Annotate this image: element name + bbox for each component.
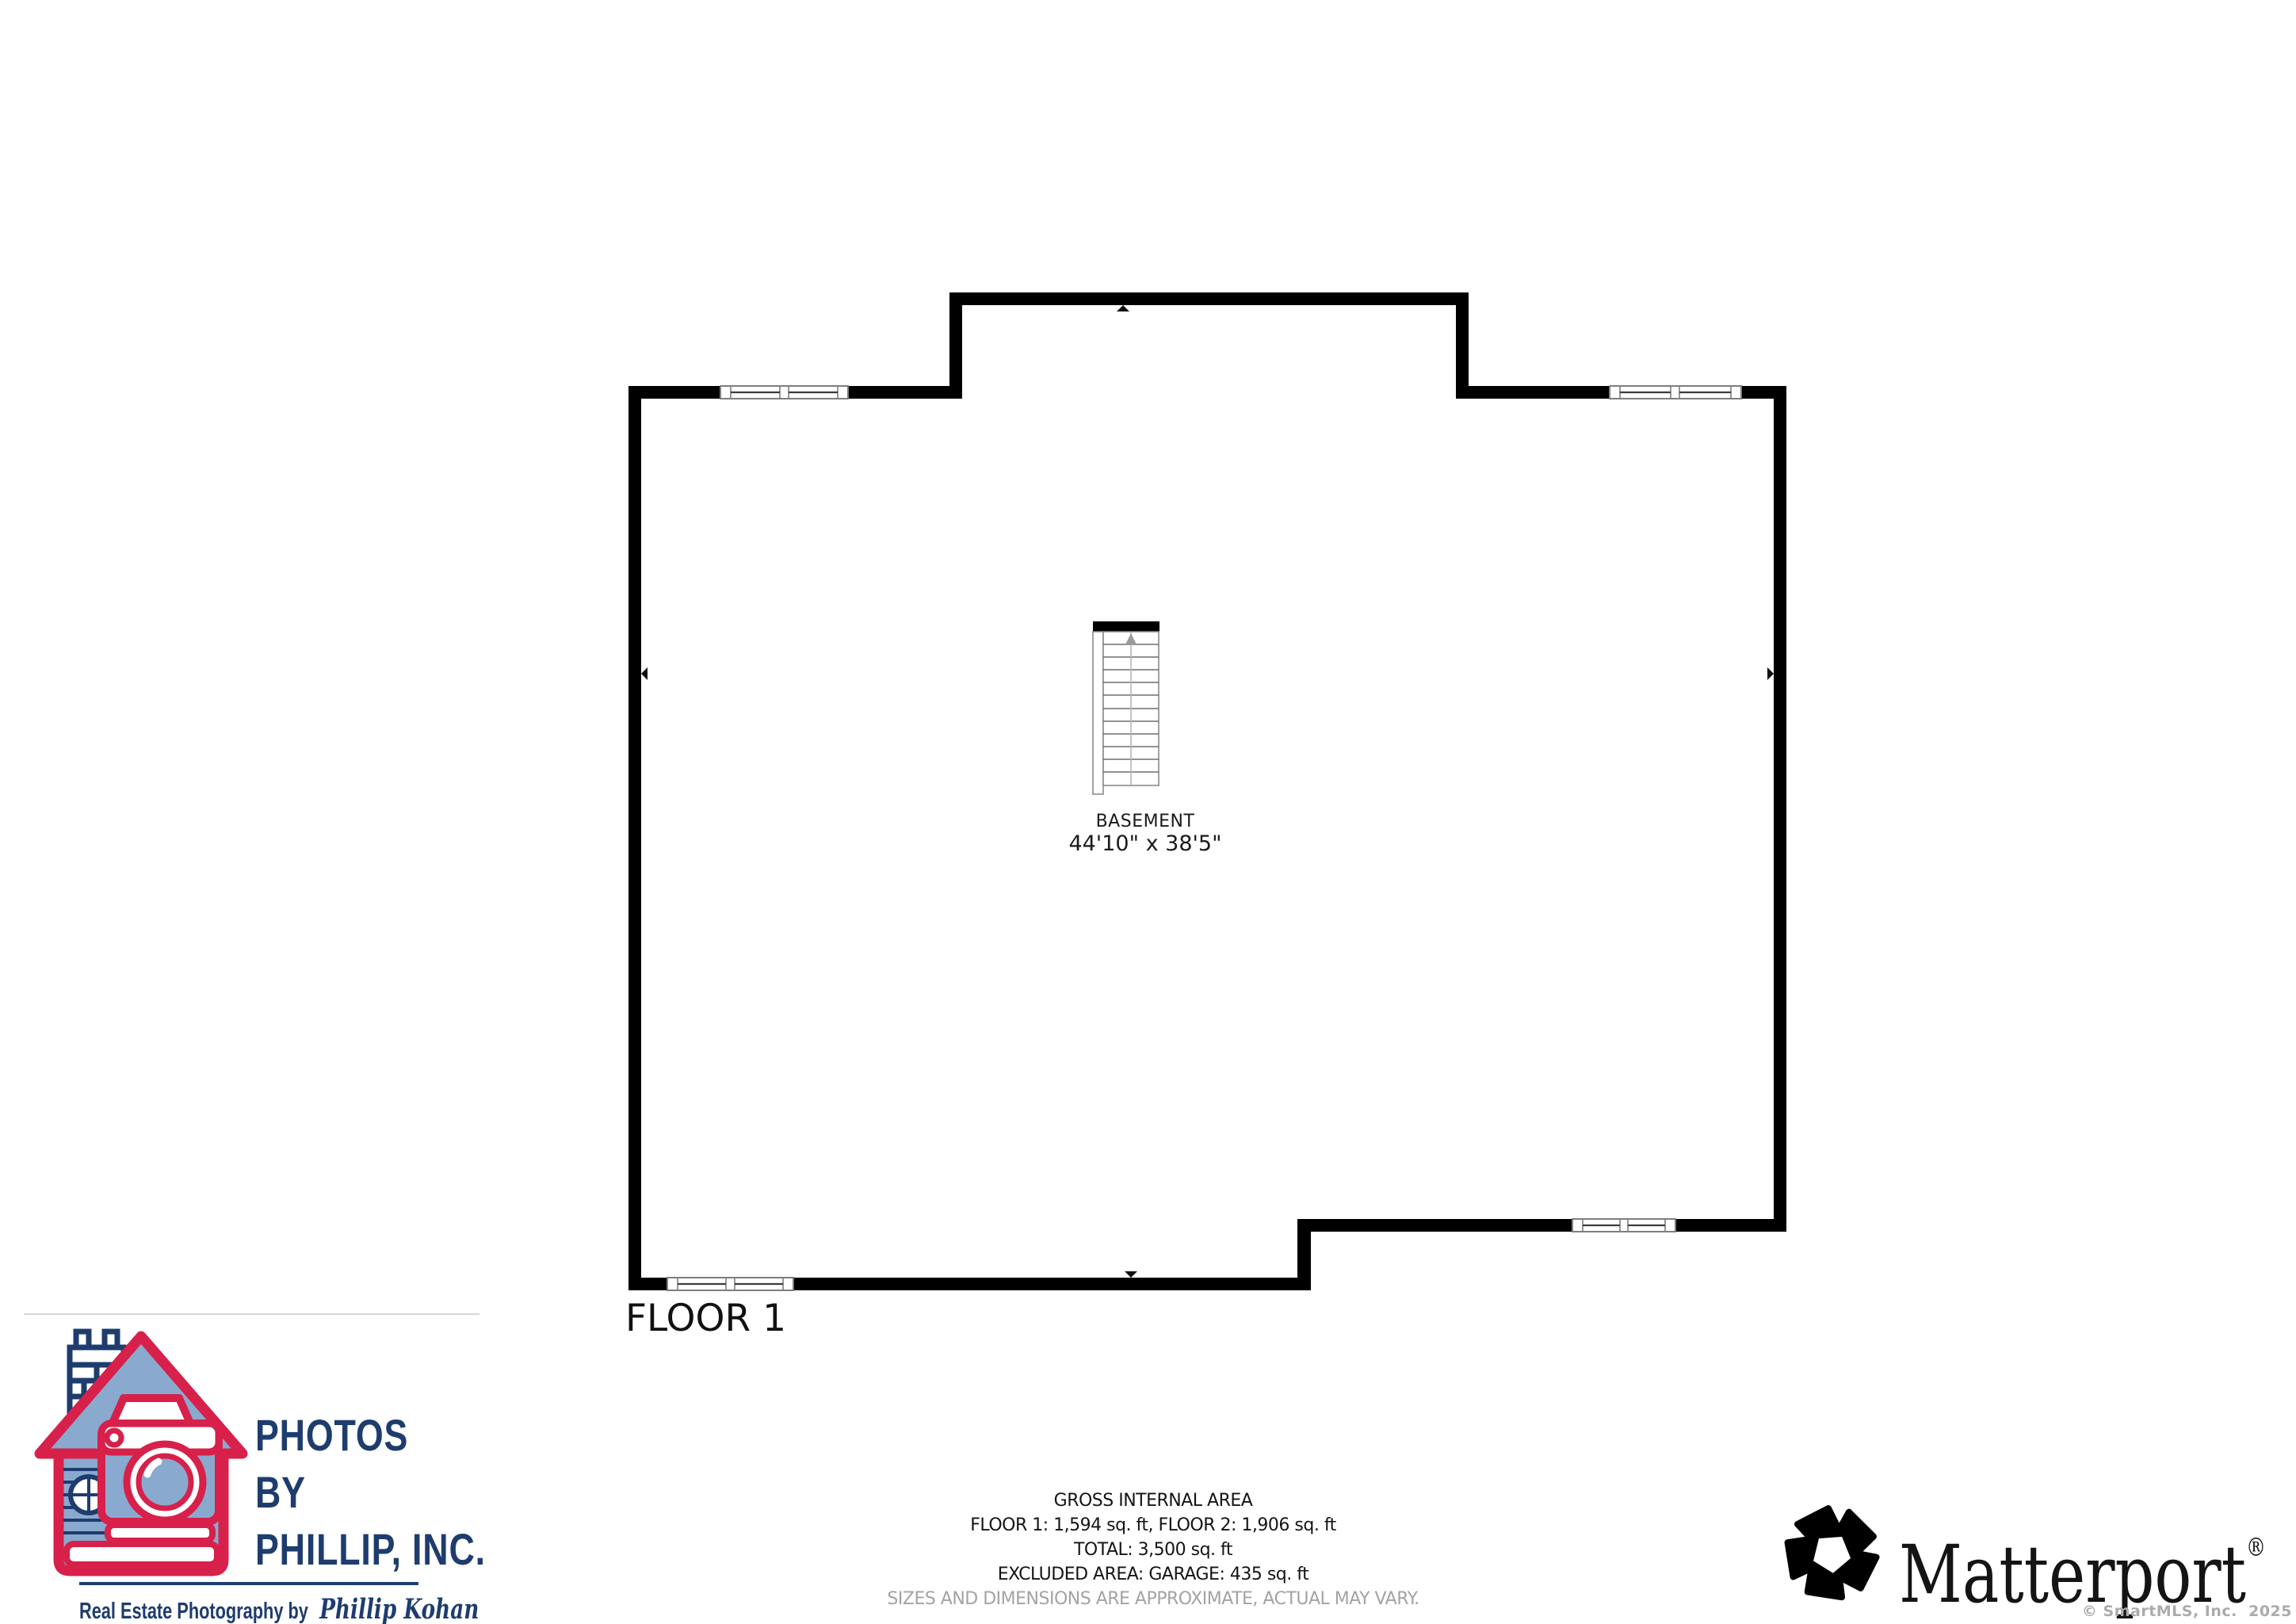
area-excluded: EXCLUDED AREA: GARAGE: 435 sq. ft (836, 1562, 1470, 1587)
photographer-name-line3: PHILLIP, INC. (255, 1523, 486, 1575)
camera (101, 1398, 219, 1541)
photographer-tagline: Real Estate Photography by Phillip Kohan (79, 1593, 479, 1624)
stair-stringer (1093, 632, 1103, 794)
floor-label: FLOOR 1 (625, 1297, 786, 1340)
area-floors: FLOOR 1: 1,594 sq. ft, FLOOR 2: 1,906 sq… (836, 1513, 1470, 1538)
house-camera-logo-icon (32, 1325, 250, 1580)
wall-marker-bottom-icon (1125, 1271, 1137, 1278)
area-disclaimer: SIZES AND DIMENSIONS ARE APPROXIMATE, AC… (836, 1587, 1470, 1611)
wall-marker-top-icon (1117, 305, 1129, 311)
window-bottom-right (1572, 1219, 1675, 1232)
tagline-name: Phillip Kohan (319, 1593, 479, 1624)
window-bottom-left (667, 1278, 793, 1290)
room-label-block: BASEMENT 44'10" x 38'5" (907, 812, 1383, 856)
logo-divider (79, 1582, 418, 1585)
foundation (67, 1544, 217, 1565)
logo-top-divider (24, 1313, 479, 1315)
matterport-pentagon-icon (1782, 1504, 1881, 1603)
photographer-name-line1: PHOTOS (255, 1409, 408, 1461)
copyright-notice: © SmartMLS, Inc. 2025 (1902, 1603, 2292, 1620)
area-title: GROSS INTERNAL AREA (836, 1488, 1470, 1513)
wall-marker-right-icon (1767, 667, 1774, 680)
staircase (1093, 621, 1159, 794)
area-total: TOTAL: 3,500 sq. ft (836, 1538, 1470, 1562)
registered-trademark: ® (2246, 1532, 2266, 1562)
stair-header-wall (1093, 621, 1159, 632)
wall-marker-left-icon (641, 667, 648, 680)
basement-walls (628, 292, 1786, 1290)
room-name: BASEMENT (907, 812, 1383, 832)
room-dimensions: 44'10" x 38'5" (907, 832, 1383, 856)
tagline-prefix: Real Estate Photography by (79, 1599, 308, 1624)
photographer-name-line2: BY (255, 1466, 306, 1518)
window-top-right (1610, 386, 1741, 399)
floor-plan-page: BASEMENT 44'10" x 38'5" FLOOR 1 GROSS IN… (0, 0, 2296, 1624)
area-summary: GROSS INTERNAL AREA FLOOR 1: 1,594 sq. f… (836, 1488, 1470, 1611)
window-top-left (720, 386, 848, 399)
